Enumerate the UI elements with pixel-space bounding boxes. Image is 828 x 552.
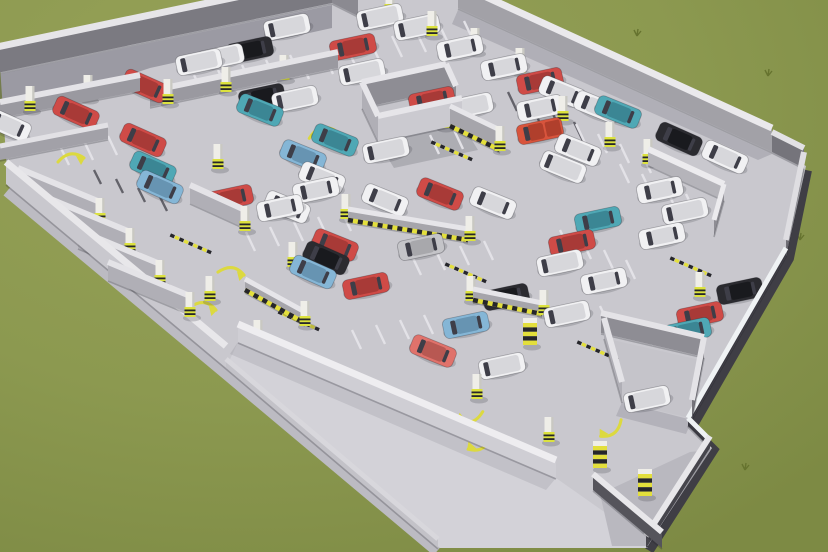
parking-garage-render: [0, 0, 828, 552]
scene-canvas: [0, 0, 828, 552]
